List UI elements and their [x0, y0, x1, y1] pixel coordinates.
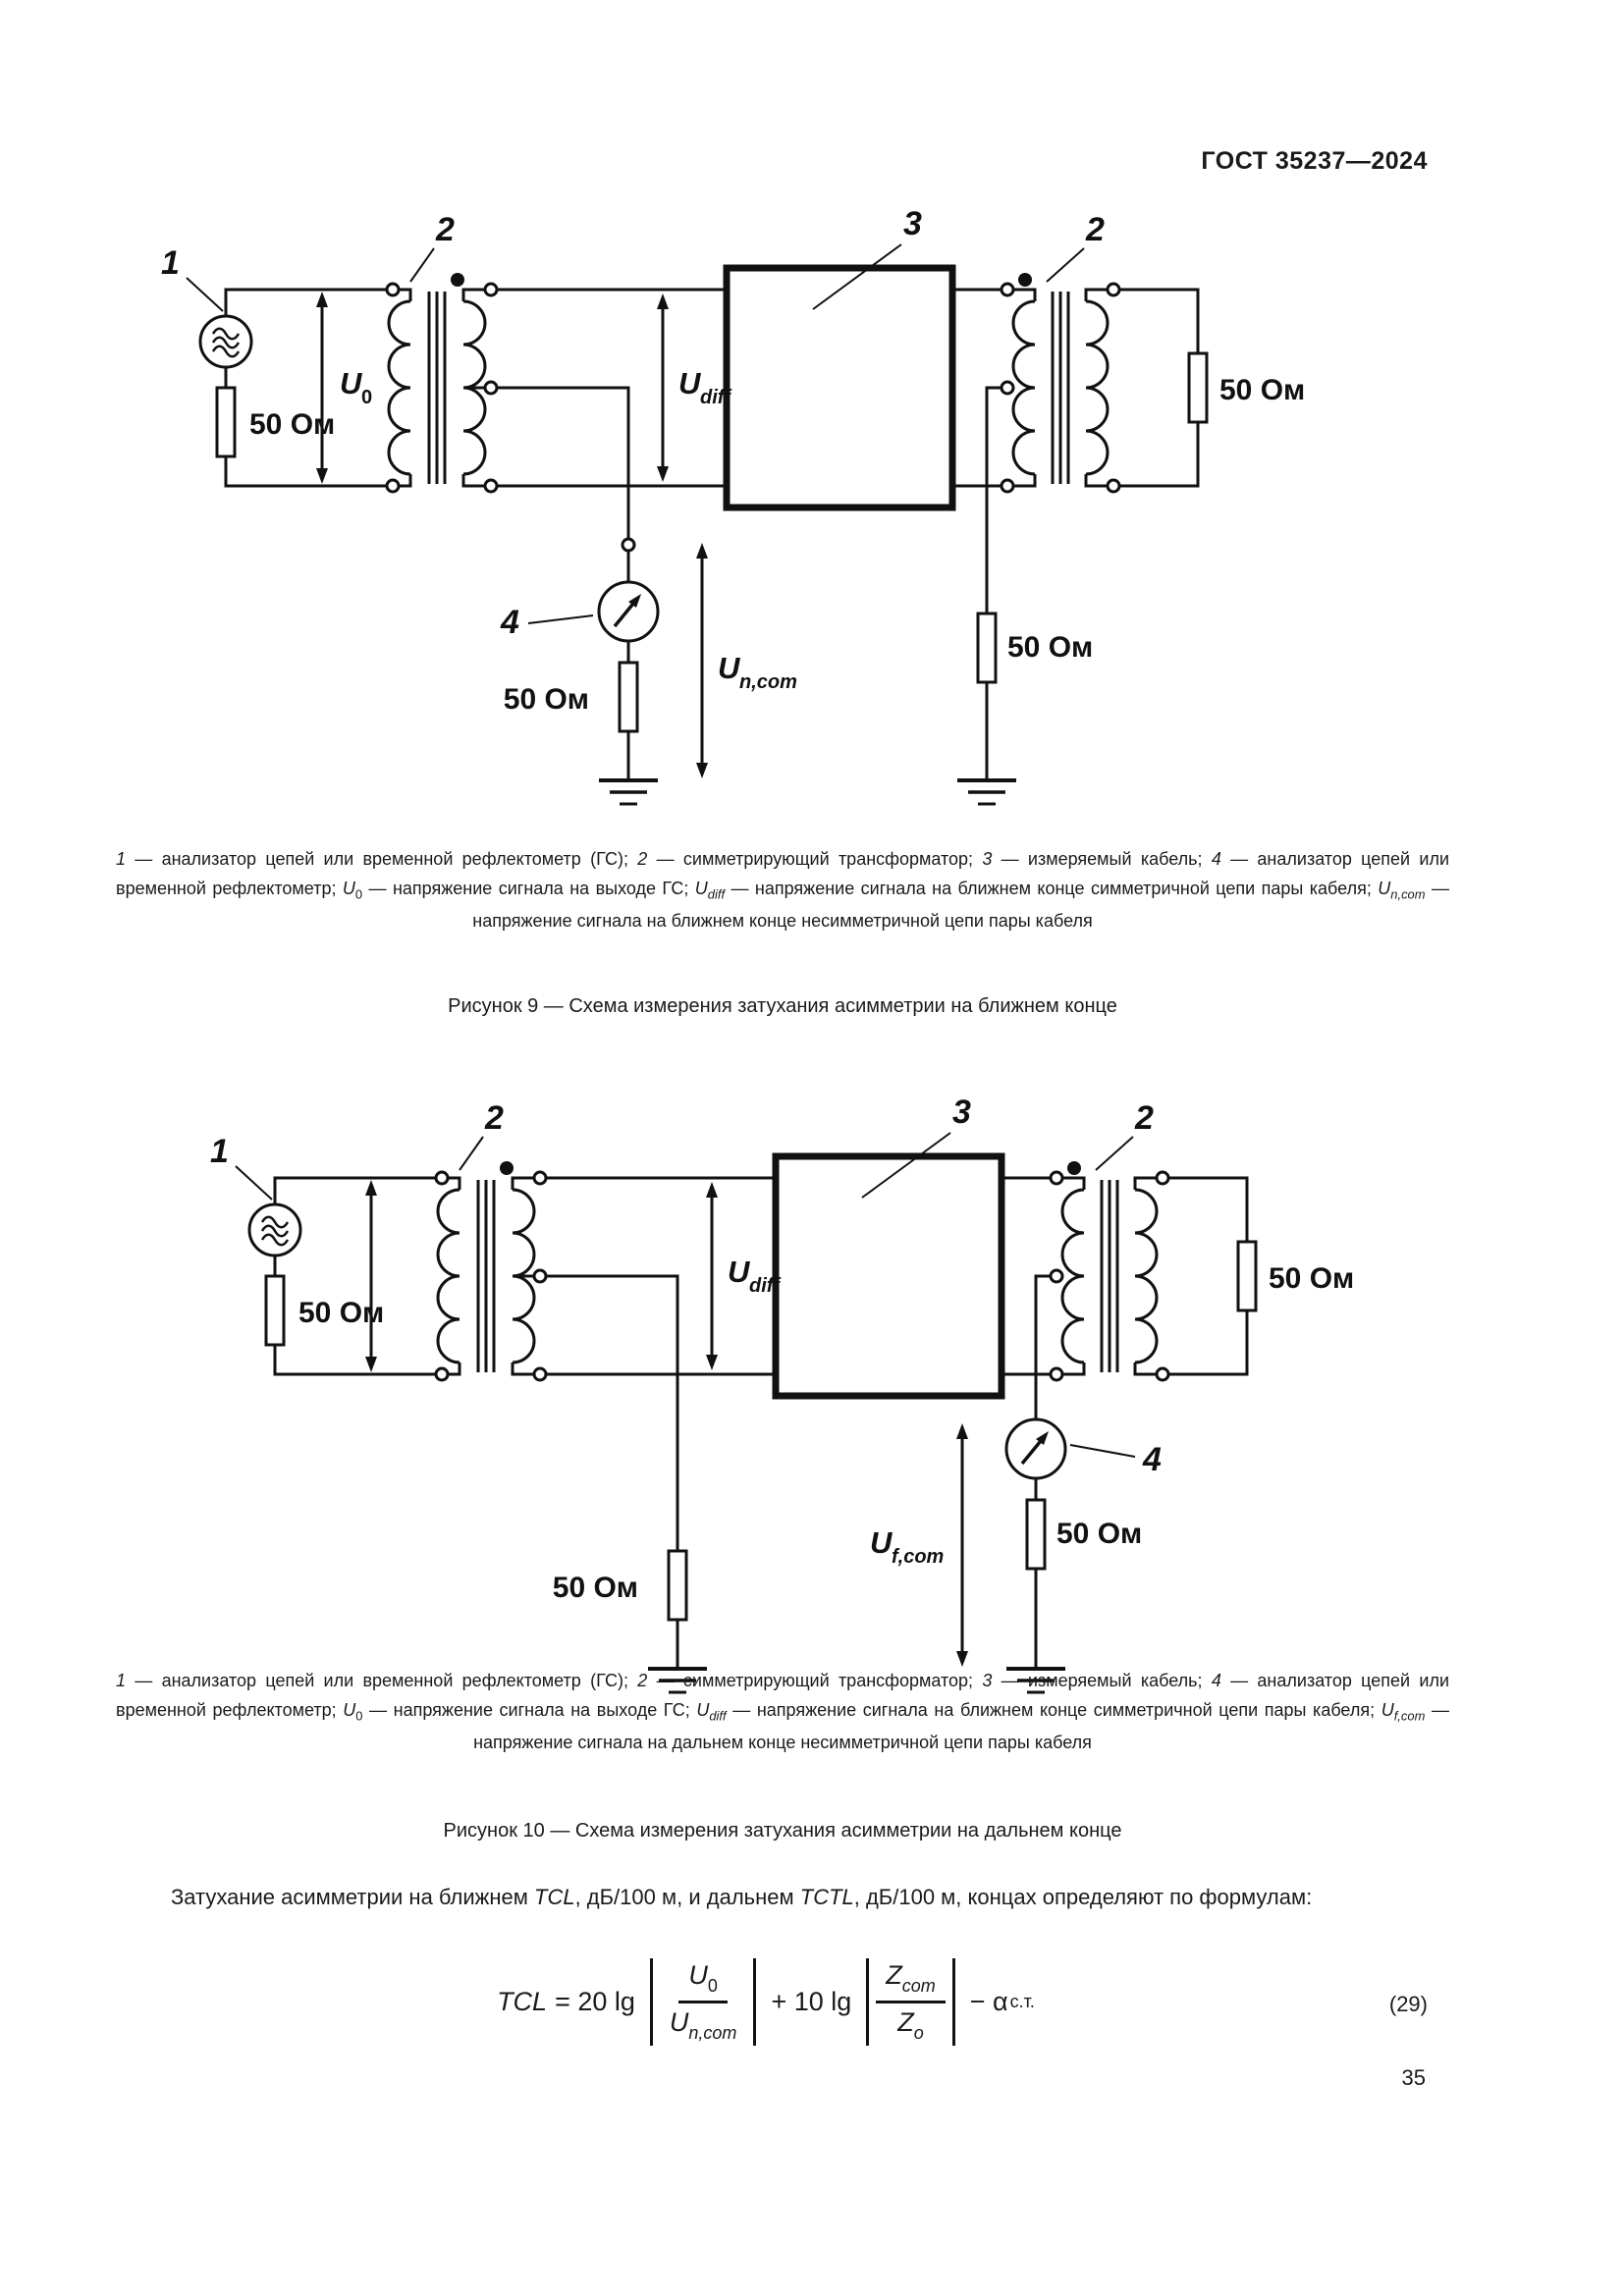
- fig9-callout-2-right: 2: [1085, 211, 1105, 248]
- figure-10-title: Рисунок 10 — Схема измерения затухания а…: [116, 1820, 1449, 1842]
- caption-segment: U: [343, 879, 355, 898]
- abs-bar: [866, 1958, 869, 2046]
- caption-segment: — напряжение сигнала на выходе ГС;: [362, 879, 695, 898]
- fig10-ufcom-sub: f,com: [892, 1546, 944, 1568]
- fig9-resistors: [217, 353, 1207, 731]
- fig9-callout-2-left: 2: [435, 211, 455, 248]
- den1-sub: n,com: [688, 2023, 736, 2043]
- fig10-cable-box: [776, 1156, 1001, 1396]
- formula-29: TCL = 20 lg U0 Un,com + 10 lg Zcom Zo − …: [422, 1958, 1110, 2046]
- fig9-load-resistor-label: 50 Ом: [1219, 374, 1305, 406]
- fig10-callout-1: 1: [210, 1133, 229, 1170]
- caption-segment: 4: [1212, 849, 1221, 869]
- caption-segment: U: [1378, 879, 1390, 898]
- formula-op2: + 10 lg: [771, 1987, 851, 2017]
- fig10-resistors: [266, 1242, 1256, 1620]
- fig9-uncom-arrow: [696, 543, 708, 778]
- caption-segment: f,com: [1394, 1709, 1426, 1724]
- fig9-source-resistor-label: 50 Ом: [249, 408, 335, 441]
- fig10-udiff-arrow: [706, 1182, 718, 1370]
- caption-segment: diff: [709, 1709, 726, 1724]
- caption-segment: TCTL: [800, 1885, 854, 1909]
- caption-segment: — напряжение сигнала на выходе ГС;: [362, 1700, 696, 1720]
- fig9-callout-1: 1: [161, 244, 180, 282]
- caption-segment: — измеряемый кабель;: [992, 849, 1211, 869]
- caption-segment: 3: [982, 849, 992, 869]
- caption-segment: — напряжение сигнала на ближнем конце си…: [727, 1700, 1381, 1720]
- document-header: ГОСТ 35237—2024: [1201, 147, 1428, 176]
- caption-segment: , дБ/100 м, концах определяют по формула…: [854, 1885, 1312, 1909]
- caption-segment: 2: [637, 1671, 647, 1690]
- fig9-udiff-arrow: [657, 294, 669, 482]
- caption-segment: — анализатор цепей или временной рефлект…: [126, 1671, 637, 1690]
- abs-bar: [952, 1958, 955, 2046]
- fig9-callout-4: 4: [500, 604, 519, 641]
- num1-main: U: [688, 1960, 708, 1990]
- caption-segment: 1: [116, 1671, 126, 1690]
- caption-segment: — измеряемый кабель;: [992, 1671, 1211, 1690]
- fig9-u0-sub: 0: [361, 387, 372, 408]
- abs-bar: [650, 1958, 653, 2046]
- num2-sub: com: [902, 1976, 936, 1996]
- fig10-ufcom-label: U: [870, 1525, 893, 1560]
- caption-segment: U: [696, 1700, 709, 1720]
- abs-bar: [753, 1958, 756, 2046]
- body-paragraph: Затухание асимметрии на ближнем TCL, дБ/…: [116, 1881, 1449, 1914]
- caption-segment: 4: [1212, 1671, 1221, 1690]
- caption-segment: — анализатор цепей или временной рефлект…: [126, 849, 637, 869]
- formula-row: TCL = 20 lg U0 Un,com + 10 lg Zcom Zo − …: [0, 1958, 1624, 2076]
- caption-segment: Затухание асимметрии на ближнем: [171, 1885, 534, 1909]
- caption-segment: TCL: [534, 1885, 575, 1909]
- fig9-generator-icon: [200, 316, 251, 367]
- fig9-u0-label: U: [340, 366, 363, 400]
- fig10-left-resistor-label: 50 Ом: [553, 1572, 638, 1604]
- fig10-load-resistor-label: 50 Ом: [1269, 1262, 1354, 1295]
- document-page: ГОСТ 35237—2024: [0, 0, 1624, 2296]
- fig10-udiff-sub: diff: [749, 1275, 782, 1297]
- fig9-udiff-sub: diff: [700, 387, 732, 408]
- page-number: 35: [1402, 2065, 1426, 2091]
- caption-segment: 1: [116, 849, 126, 869]
- equation-number: (29): [1389, 1992, 1428, 2017]
- formula-fraction-2: Zcom Zo: [876, 1958, 946, 2046]
- caption-segment: n,com: [1390, 887, 1425, 902]
- fig10-ufcom-arrow: [956, 1423, 968, 1667]
- figure-9-diagram: 1 2 3 2 4 50 Ом 50 Ом 50 Ом 50 Ом U 0 U …: [98, 191, 1394, 829]
- caption-segment: 2: [637, 849, 647, 869]
- formula-fraction-1: U0 Un,com: [660, 1958, 747, 2046]
- figure-9-caption: 1 — анализатор цепей или временной рефле…: [116, 844, 1449, 935]
- fig10-callout-3: 3: [952, 1094, 971, 1131]
- fig10-udiff-label: U: [728, 1255, 751, 1289]
- fig10-source-resistor-label: 50 Ом: [298, 1297, 384, 1329]
- caption-segment: — симметрирующий трансформатор;: [647, 1671, 982, 1690]
- caption-segment: — напряжение сигнала на ближнем конце си…: [725, 879, 1378, 898]
- formula-op3-sub: с.т.: [1010, 1992, 1035, 2012]
- num1-sub: 0: [708, 1976, 718, 1996]
- den2-sub: o: [914, 2023, 924, 2043]
- fig10-callout-2-right: 2: [1134, 1099, 1154, 1137]
- fig10-meter-icon: [1006, 1419, 1065, 1478]
- figure-10-diagram: 1 2 3 2 4 50 Ом 50 Ом 50 Ом 50 Ом U diff…: [147, 1080, 1443, 1708]
- caption-segment: — симметрирующий трансформатор;: [647, 849, 982, 869]
- formula-lhs: TCL: [497, 1987, 547, 2017]
- num2-main: Z: [886, 1960, 902, 1990]
- caption-segment: U: [695, 879, 708, 898]
- caption-segment: U: [343, 1700, 355, 1720]
- fig10-generator-icon: [249, 1204, 300, 1255]
- fig9-meter-icon: [599, 582, 658, 641]
- figure-9-title: Рисунок 9 — Схема измерения затухания ас…: [116, 995, 1449, 1018]
- caption-segment: U: [1381, 1700, 1394, 1720]
- caption-segment: , дБ/100 м, и дальнем: [575, 1885, 800, 1909]
- fig10-u0-arrow: [365, 1180, 377, 1372]
- fig9-u0-arrow: [316, 292, 328, 484]
- fig10-meter-resistor-label: 50 Ом: [1056, 1518, 1142, 1550]
- fig9-callout-3: 3: [903, 205, 922, 242]
- fig9-uncom-sub: n,com: [739, 671, 797, 693]
- fig9-meter-resistor-label: 50 Ом: [504, 683, 589, 716]
- fig9-mid-resistor-label: 50 Ом: [1007, 631, 1093, 664]
- den2-main: Z: [897, 2007, 914, 2037]
- formula-op1: = 20 lg: [555, 1987, 635, 2017]
- fig9-udiff-label: U: [678, 366, 702, 400]
- fig9-uncom-label: U: [718, 651, 741, 685]
- fig10-callout-4: 4: [1142, 1441, 1162, 1478]
- figure-10-caption: 1 — анализатор цепей или временной рефле…: [116, 1666, 1449, 1757]
- caption-segment: diff: [708, 887, 725, 902]
- caption-segment: 3: [982, 1671, 992, 1690]
- fig9-grounds: [599, 780, 1016, 804]
- fig10-callout-2-left: 2: [484, 1099, 504, 1137]
- fig9-cable-box: [727, 268, 952, 507]
- formula-op3: − α: [970, 1987, 1008, 2017]
- den1-main: U: [670, 2007, 689, 2037]
